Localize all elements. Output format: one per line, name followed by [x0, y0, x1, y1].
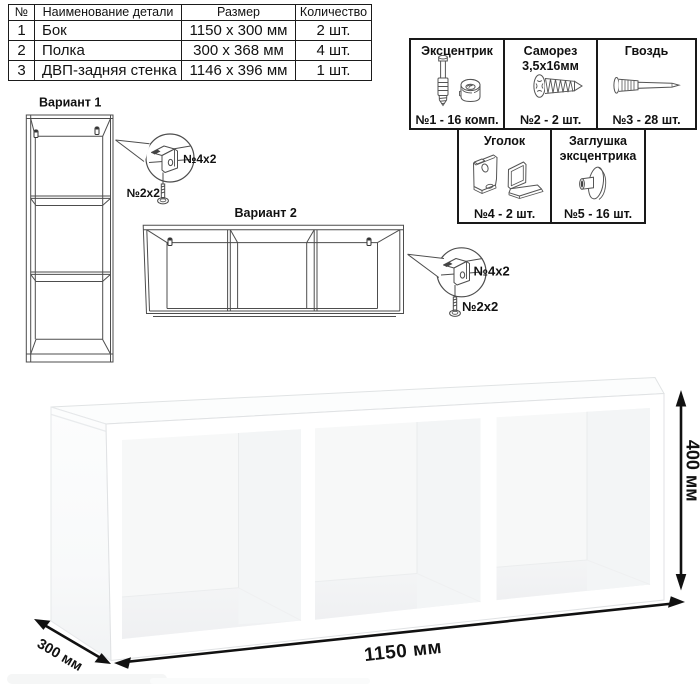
svg-text:№4х2: №4х2: [183, 152, 217, 166]
svg-text:Вариант 2: Вариант 2: [235, 206, 297, 220]
svg-text:300 мм: 300 мм: [34, 636, 85, 675]
svg-text:№4х2: №4х2: [474, 264, 510, 279]
svg-text:400 мм: 400 мм: [683, 440, 700, 502]
svg-text:№2х2: №2х2: [462, 299, 498, 314]
svg-text:1150 мм: 1150 мм: [363, 637, 443, 666]
svg-text:Вариант 1: Вариант 1: [39, 96, 101, 110]
svg-text:№2х2: №2х2: [127, 186, 161, 200]
